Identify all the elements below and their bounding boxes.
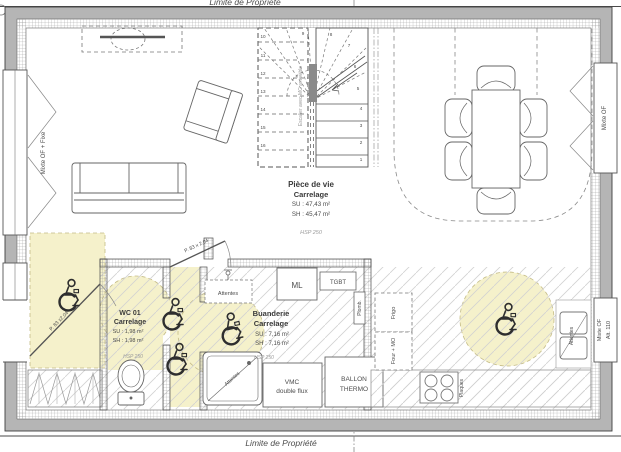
- closet: [28, 370, 102, 407]
- dining-chair: [520, 142, 547, 180]
- room-sh: SH : 1,98 m²: [113, 338, 144, 344]
- property-limit-top-label: Limite de Propriété: [209, 0, 281, 7]
- step-number: 16: [260, 143, 266, 148]
- floor-plan-svg: Mixte OF + Fixe P. 83 x2,04 Mixte OF Mix…: [0, 0, 621, 452]
- wc-window: [0, 263, 28, 300]
- room-su: SU : 7,16 m²: [255, 332, 289, 338]
- step-number: 4: [360, 106, 363, 111]
- kitchen-counter: [371, 370, 591, 407]
- living-room-label: Pièce de vie Carrelage SU : 47,43 m² SH …: [288, 180, 334, 236]
- step-number: 8: [330, 32, 333, 37]
- stairs: Escalier avec MC amovible 1 2 3 4 5 6 7 …: [258, 28, 378, 167]
- step-number: 6: [354, 64, 357, 69]
- room-finish: Carrelage: [114, 319, 146, 326]
- entry-zone: [30, 233, 105, 368]
- room-name: WC 01: [119, 310, 141, 317]
- sink-attentes-label: Attentes: [569, 326, 575, 345]
- room-sh: SH : 7,16 m²: [255, 341, 289, 347]
- newel-post: [309, 64, 317, 102]
- toilet-icon: [118, 360, 144, 405]
- floor-plan-page: Mixte OF + Fixe P. 83 x2,04 Mixte OF Mix…: [0, 0, 621, 452]
- right-window-label: Mixte OF: [597, 318, 603, 341]
- step-number: 13: [260, 89, 266, 94]
- right-door-label: Mixte OF: [602, 106, 608, 131]
- left-window-label: Mixte OF + Fixe: [41, 131, 47, 174]
- step-number: 2: [360, 140, 363, 145]
- dining-chair: [445, 142, 472, 180]
- room-sh: SH : 45,47 m²: [292, 211, 330, 218]
- water-heater-label-1: BALLON: [341, 376, 367, 383]
- dining-table: [472, 90, 520, 188]
- room-hsp: HSP 250: [123, 354, 143, 360]
- dining-chair: [477, 66, 515, 92]
- armchair: [183, 80, 243, 144]
- room-hsp: HSP 250: [300, 230, 323, 236]
- room-name: Buanderie: [253, 309, 290, 318]
- cooktop-icon: [420, 372, 458, 403]
- step-number: 3: [360, 123, 363, 128]
- tgbt-label: TGBT: [330, 280, 346, 286]
- sofa: [72, 163, 186, 213]
- flue-lines: [374, 28, 378, 167]
- step-number: 11: [261, 53, 266, 58]
- room-finish: Carrelage: [294, 190, 329, 199]
- property-limit-bottom-label: Limite de Propriété: [245, 438, 317, 448]
- fridge-label: Frigo: [391, 307, 397, 320]
- step-number: 14: [260, 107, 266, 112]
- step-number: 15: [260, 125, 266, 130]
- room-su: SU : 1,98 m²: [113, 329, 144, 335]
- cooktop-label: Plaques: [459, 378, 465, 397]
- hall-door: P. 83 x 2,04: [170, 238, 231, 267]
- washing-machine-label: ML: [291, 281, 303, 290]
- room-su: SU : 47,43 m²: [292, 201, 330, 208]
- casement-swing: [570, 66, 593, 170]
- tv-console: [82, 26, 182, 52]
- dining-chair: [445, 99, 472, 137]
- room-finish: Carrelage: [254, 319, 289, 328]
- right-french-door: Mixte OF: [570, 63, 621, 173]
- water-heater-label-2: THERMO: [340, 386, 368, 393]
- step-number: 10: [260, 34, 266, 39]
- vmc-label-1: VMC: [285, 379, 300, 386]
- right-window-alt-label: Alt. 110: [606, 321, 612, 339]
- plomb-label: Plomb.: [357, 300, 363, 316]
- room-name: Pièce de vie: [288, 180, 334, 189]
- step-number: 12: [260, 71, 266, 76]
- oven-label: Four + MO: [391, 337, 397, 364]
- dining-chair: [477, 188, 515, 214]
- room-hsp: HSP 250: [254, 355, 274, 361]
- step-number: 7: [348, 43, 351, 48]
- vmc-label-2: double flux: [276, 388, 308, 395]
- dining-chair: [520, 99, 547, 137]
- step-number: 1: [360, 157, 363, 162]
- step-number: 5: [357, 86, 360, 91]
- right-low-window: Mixte OF Alt. 110: [592, 298, 621, 362]
- left-window: Mixte OF + Fixe: [0, 70, 56, 235]
- step-number: 9: [302, 31, 305, 36]
- stairs-note: Escalier avec MC amovible: [298, 66, 304, 127]
- attentes-label: Attentes: [218, 291, 238, 297]
- dining-set: [445, 66, 547, 214]
